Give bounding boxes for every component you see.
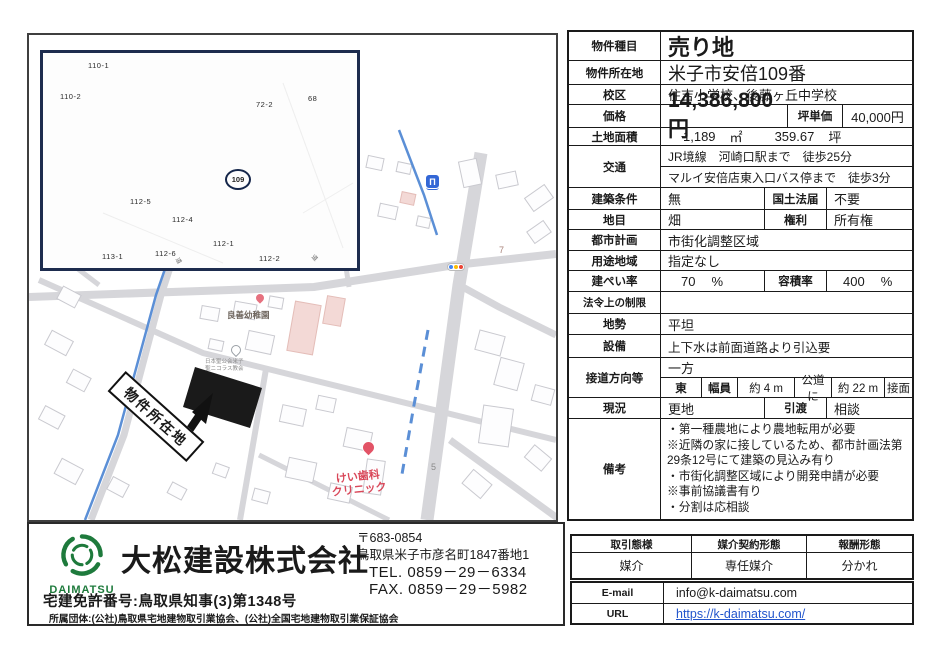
coverage-value: 70 [681,274,695,289]
row-price-unit-label: 坪単価 [787,105,842,127]
deal-type-table: 取引態様 媒介契約形態 報酬形態 媒介 専任媒介 分かれ [570,534,914,580]
road-frontage: 約 22 m [831,378,884,398]
legal-value [661,292,912,313]
parcel-label: 110-2 [60,92,81,101]
deal-value: 分かれ [806,553,912,578]
license-number: 宅建免許番号:鳥取県知事(3)第1348号 [43,590,297,611]
email-label: E-mail [572,583,664,603]
row-price-label: 価格 [569,105,661,127]
church-label-line2: 聖ニコラス教会 [205,366,244,373]
company-tel: TEL. 0859－29－6334 [357,564,529,581]
company-name: 大松建設株式会社 [121,536,369,580]
route-number-5: 5 [431,462,436,472]
row-access-label: 交通 [569,146,661,187]
daimatsu-swirl-icon [58,532,106,578]
route-number-7: 7 [499,245,504,255]
row-location-value: 米子市安倍109番 [661,61,912,84]
parcel-label: 112-6 [155,249,176,258]
associations: 所属団体:(公社)鳥取県宅地建物取引業協会、(公社)全国宅地建物取引業保証協会 [49,611,398,625]
url-label: URL [572,604,664,623]
company-info-box: DAIMATSU CONSTRUCTION 大松建設株式会社 〒683-0854… [27,522,565,626]
area-tsubo-unit: 坪 [828,127,841,146]
remarks-line: ※事前協議書有り [667,484,906,500]
url-link[interactable]: https://k-daimatsu.com/ [676,607,805,621]
church-label: 日本聖公会米子 聖ニコラス教会 [205,359,244,372]
email-value: info@k-daimatsu.com [664,583,912,603]
coverage-unit: % [711,274,723,289]
cadastral-inset-map: 110-1 110-2 72-2 68 109 112-5 112-4 112-… [40,50,360,271]
parcel-label: 112-2 [259,254,280,263]
parcel-label: 112-5 [130,197,151,206]
area-sqm-unit: ㎡ [730,127,743,146]
row-city-planning-label: 都市計画 [569,230,661,250]
parcel-label: 68 [308,94,317,103]
parcel-label: 113-1 [102,252,123,261]
church-label-line1: 日本聖公会米子 [205,359,244,366]
deal-header: 報酬形態 [806,536,912,552]
row-land-category-label: 地目 [569,210,661,229]
row-building-condition-label: 建築条件 [569,188,661,209]
remarks-line: ・市街化調整区域により開発申請が必要 [667,469,906,485]
deal-value: 媒介 [572,553,691,578]
church-pin-icon [231,345,241,355]
dental-pin-icon [362,441,375,454]
deal-header: 取引態様 [572,536,691,552]
far-value: 400 [843,274,865,289]
remarks-text: ・第一種農地により農地転用が必要 ※近隣の家に接しているため、都市計画法第29条… [661,419,912,519]
inset-boundary-lines [43,53,357,268]
street-map: 110-1 110-2 72-2 68 109 112-5 112-4 112-… [27,33,558,522]
row-type-label: 物件種目 [569,32,661,60]
road-face-label: 接面 [884,378,912,398]
property-detail-table: 物件種目 売り地 物件所在地 米子市安倍109番 校区 住吉小学校、後藤ヶ丘中学… [567,30,914,521]
road-direction-value: 一方 [661,358,912,378]
parcel-label: 112-1 [213,239,234,248]
kindergarten-label: 良善幼稚園 [227,309,270,321]
row-road-label: 接道方向等 [569,358,661,397]
row-zoning-label: 用途地域 [569,251,661,270]
company-address: 鳥取県米子市彦名町1847番地1 [357,547,529,564]
subject-parcel-circle: 109 [225,169,251,190]
row-legal-label: 法令上の制限 [569,292,661,313]
land-act-label: 国土法届 [764,188,826,209]
kindergarten-pin-icon [255,293,265,303]
row-remarks-label: 備考 [569,419,661,519]
road-kind: 公道に [794,378,831,398]
remarks-line: ・第一種農地により農地転用が必要 [667,422,906,438]
row-price-unit-value: 40,000円 [842,105,912,127]
remarks-line: ・分割は応相談 [667,500,906,516]
area-tsubo: 359.67 [775,129,815,144]
access-line1: JR境線 河崎口駅まで 徒歩25分 [661,146,912,167]
land-category-value: 畑 [661,210,764,229]
deal-value: 専任媒介 [691,553,806,578]
row-status-label: 現況 [569,398,661,418]
row-location-label: 物件所在地 [569,61,661,84]
rights-label: 権利 [764,210,826,229]
building-condition-value: 無 [661,188,764,209]
land-act-value: 不要 [826,188,912,209]
contact-table: E-mail info@k-daimatsu.com URL https://k… [570,581,914,625]
company-contact-block: 〒683-0854 鳥取県米子市彦名町1847番地1 TEL. 0859－29－… [357,530,529,598]
zoning-value: 指定なし [661,251,912,270]
parcel-label: 110-1 [88,61,109,70]
road-width-label: 幅員 [701,378,737,398]
road-dir: 東 [661,378,701,398]
parcel-label: 112-4 [172,215,193,224]
remarks-line: ※近隣の家に接しているため、都市計画法第29条12号にて建築の見込み有り [667,438,906,469]
road-width-value: 約 4 m [737,378,794,398]
utilities-value: 上下水は前面道路より引込要 [661,335,912,357]
company-fax: FAX. 0859－29－5982 [357,581,529,598]
handover-value: 相談 [826,398,912,418]
row-area-label: 土地面積 [569,128,661,145]
parcel-label: 72-2 [256,100,273,109]
city-planning-value: 市街化調整区域 [661,230,912,250]
status-value: 更地 [661,398,764,418]
handover-label: 引渡 [764,398,826,418]
row-utilities-label: 設備 [569,335,661,357]
row-coverage-label: 建ぺい率 [569,271,661,291]
access-line2: マルイ安倍店東入口バス停まで 徒歩3分 [661,167,912,187]
traffic-light-icon [447,263,465,271]
row-school-label: 校区 [569,85,661,104]
area-sqm: 1,189 [683,129,716,144]
bridge-icon: Π [425,174,440,189]
rights-value: 所有権 [826,210,912,229]
terrain-value: 平坦 [661,314,912,334]
far-label: 容積率 [764,271,826,291]
row-type-value: 売り地 [661,32,912,60]
company-postal: 〒683-0854 [357,530,529,547]
deal-header: 媒介契約形態 [691,536,806,552]
far-unit: % [881,274,893,289]
row-price-value: 14,386,800円 [661,105,787,127]
row-terrain-label: 地勢 [569,314,661,334]
